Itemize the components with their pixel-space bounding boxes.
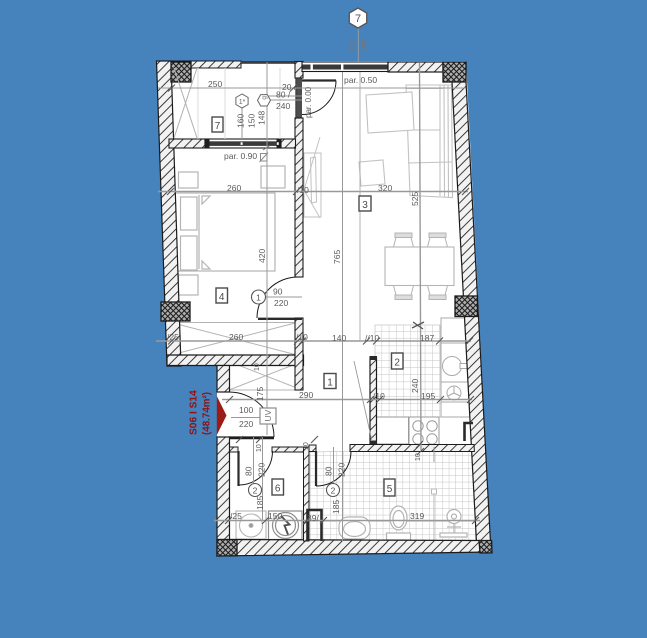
svg-text:/25: /25 [230, 511, 242, 521]
svg-text:420: 420 [257, 249, 267, 263]
svg-text:80: 80 [324, 466, 334, 476]
svg-text:/10: /10 [297, 185, 309, 195]
svg-text:100: 100 [239, 405, 253, 415]
svg-text:210: 210 [348, 39, 357, 52]
svg-text:1: 1 [256, 293, 261, 303]
svg-text:S06 I S14: S06 I S14 [189, 390, 200, 435]
svg-text:6: 6 [275, 484, 281, 495]
svg-text:319: 319 [410, 511, 424, 521]
svg-text:320: 320 [378, 183, 392, 193]
svg-text:140: 140 [332, 333, 346, 343]
svg-text:2: 2 [253, 486, 258, 496]
svg-text:4: 4 [219, 292, 225, 303]
svg-text:g: g [261, 96, 268, 100]
svg-text:10: 10 [256, 444, 263, 452]
svg-text:/25: /25 [167, 332, 179, 342]
svg-text:par. 0.90: par. 0.90 [224, 151, 257, 161]
svg-text:5: 5 [387, 484, 393, 495]
svg-text:148: 148 [257, 111, 267, 125]
svg-text:10: 10 [254, 363, 261, 371]
svg-text:par. 0.00: par. 0.00 [304, 86, 313, 118]
svg-text:1: 1 [327, 378, 333, 389]
svg-text://10: //10 [365, 333, 379, 343]
svg-text:220: 220 [239, 419, 253, 429]
svg-text:80: 80 [244, 466, 254, 476]
svg-text:185: 185 [255, 496, 265, 510]
svg-text:180: 180 [360, 39, 369, 52]
svg-text:260: 260 [227, 183, 241, 193]
svg-text:195: 195 [421, 391, 435, 401]
svg-text:175: 175 [255, 387, 265, 401]
svg-text:240: 240 [276, 101, 290, 111]
svg-text:2: 2 [394, 358, 400, 369]
svg-text:240: 240 [410, 379, 420, 393]
svg-text:220: 220 [337, 463, 347, 477]
svg-text:3: 3 [362, 200, 368, 211]
svg-text:150: 150 [247, 114, 257, 128]
svg-text:290: 290 [299, 390, 313, 400]
svg-text:220: 220 [274, 298, 288, 308]
svg-text:260: 260 [229, 332, 243, 342]
svg-text:7: 7 [215, 121, 221, 132]
svg-text:/10: /10 [296, 332, 308, 342]
svg-text:2: 2 [331, 486, 336, 496]
svg-text:220: 220 [257, 463, 267, 477]
svg-text:/10: /10 [373, 391, 385, 401]
svg-text:90: 90 [273, 287, 283, 297]
svg-text:150: 150 [268, 511, 282, 521]
svg-text:(48.74m²): (48.74m²) [202, 392, 213, 435]
svg-text:10: 10 [415, 453, 422, 461]
svg-text:185: 185 [331, 500, 341, 514]
svg-text:765: 765 [332, 250, 342, 264]
svg-text:10: 10 [303, 442, 310, 450]
svg-text:1*: 1* [239, 99, 246, 106]
svg-text:UV: UV [263, 409, 273, 421]
svg-text:250: 250 [208, 79, 222, 89]
svg-text:525: 525 [410, 192, 420, 206]
svg-text:80 /: 80 / [276, 90, 291, 100]
svg-text:par. 0.50: par. 0.50 [344, 75, 377, 85]
svg-text:187: 187 [420, 333, 434, 343]
svg-text:160: 160 [236, 114, 246, 128]
svg-text:7: 7 [355, 13, 361, 25]
svg-text:39/: 39/ [307, 513, 319, 523]
